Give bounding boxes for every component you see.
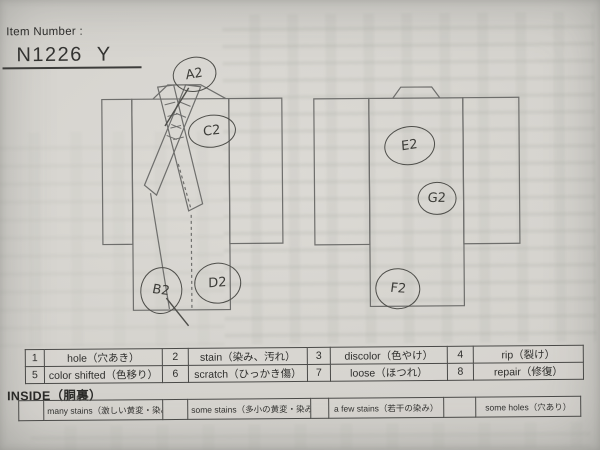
annotation-label: D2	[209, 275, 227, 291]
legend-label: loose（ほつれ）	[330, 363, 447, 381]
legend-code: 3	[307, 347, 330, 364]
legend-table: 1 hole（穴あき） 2 stain（染み、汚れ） 3 discolor（色や…	[25, 345, 584, 384]
legend-code: 8	[447, 363, 473, 380]
inside-checkbox-cell	[19, 401, 44, 421]
annotation-label: G2	[427, 191, 446, 206]
legend-label: color shifted（色移り）	[44, 366, 162, 384]
photo-background: Item Number : N1226Y	[0, 0, 600, 450]
inside-checkbox-cell	[311, 398, 329, 418]
annotation-label: F2	[389, 281, 407, 297]
legend-code: 5	[25, 367, 44, 384]
legend-label: rip（裂け）	[473, 345, 583, 363]
inside-option-label: some holes（穴あり）	[476, 396, 581, 417]
annotation-label: E2	[401, 137, 418, 154]
legend-label: discolor（色やけ）	[330, 346, 447, 364]
kimono-front-diagram	[102, 84, 284, 310]
inside-row: many stains（激しい黄変・染み） some stains（多小の黄変・…	[19, 396, 581, 420]
legend-code: 6	[162, 365, 188, 382]
legend-label: scratch（ひっかき傷）	[188, 364, 307, 382]
paper-sheet: Item Number : N1226Y	[0, 0, 600, 450]
legend-label: hole（穴あき）	[44, 349, 162, 367]
annotation-label: A2	[185, 65, 204, 83]
legend-label: repair（修復）	[473, 362, 583, 380]
annotation-label: B2	[151, 282, 171, 299]
paper-content: Item Number : N1226Y	[0, 0, 600, 450]
legend-label: stain（染み、汚れ）	[188, 347, 307, 365]
legend-code: 1	[25, 350, 44, 367]
inside-option-label: some stains（多小の黄変・染み）	[188, 398, 311, 419]
inside-table: many stains（激しい黄変・染み） some stains（多小の黄変・…	[18, 396, 581, 421]
legend-code: 2	[162, 348, 188, 365]
annotation-label: C2	[203, 123, 221, 140]
inside-checkbox-cell	[163, 399, 188, 419]
annotation-circle-g2: G2	[417, 182, 456, 215]
inside-option-label: many stains（激しい黄変・染み）	[44, 400, 163, 421]
inside-checkbox-cell	[444, 397, 476, 417]
legend-code: 7	[307, 364, 330, 381]
inside-option-label: a few stains（若干の染み）	[329, 397, 444, 418]
legend-code: 4	[447, 346, 473, 363]
